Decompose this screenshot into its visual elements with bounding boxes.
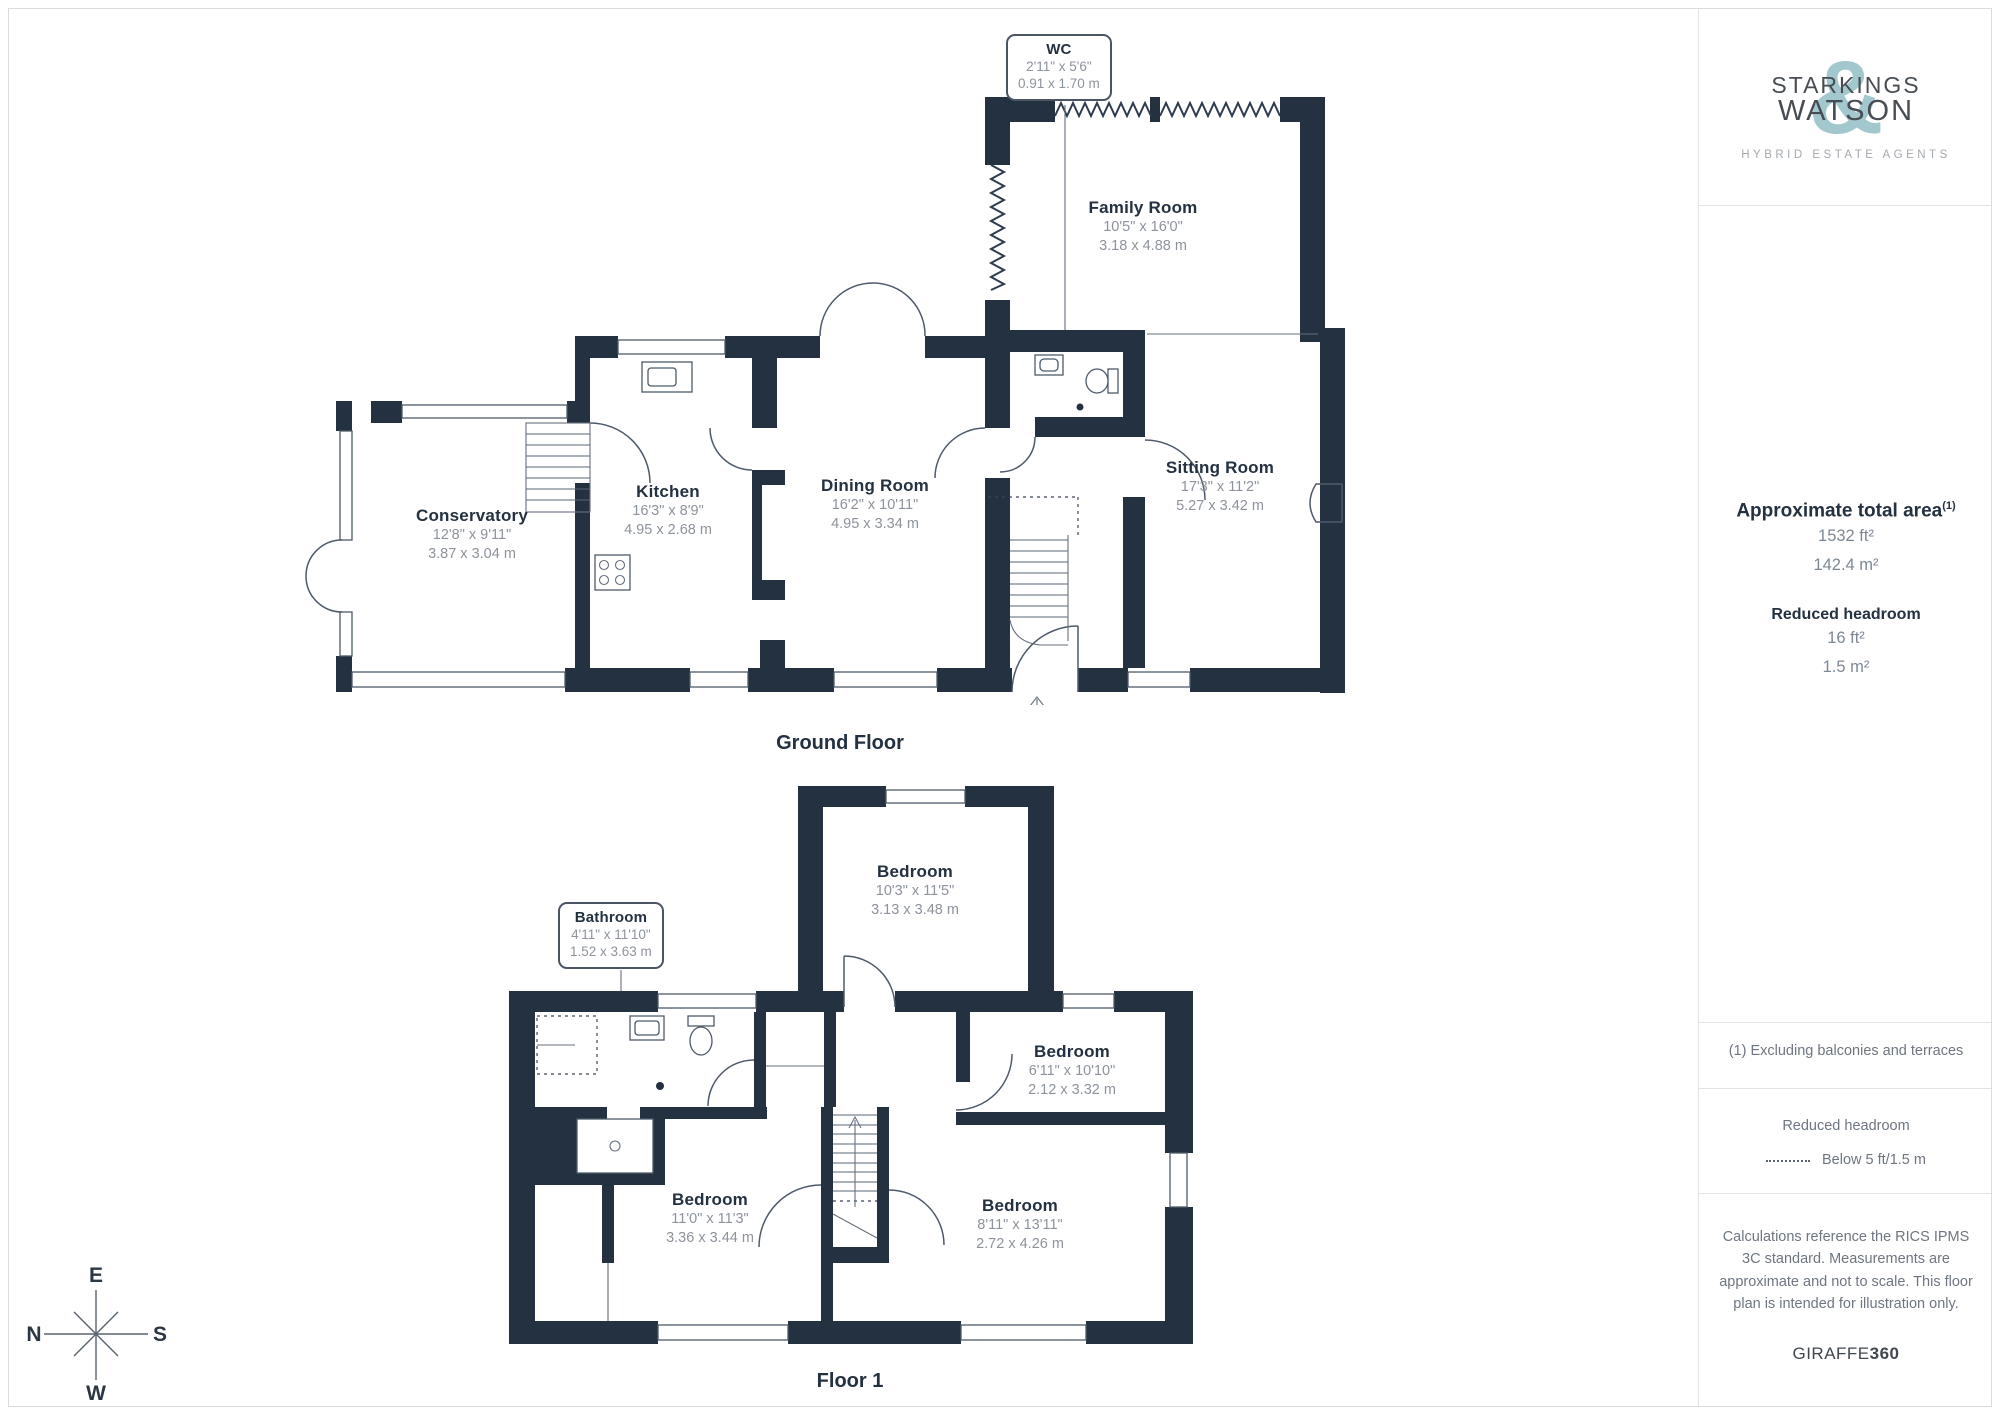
total-area-m: 142.4 m² xyxy=(1700,551,1992,580)
room-callout-wc: WC 2'11" x 5'6" 0.91 x 1.70 m xyxy=(1006,34,1112,101)
zigzag-wall-marks xyxy=(991,103,1280,290)
provider-name: GIRAFFE xyxy=(1792,1344,1869,1363)
room-label-bedroom-bottom-right: Bedroom 8'11" x 13'11" 2.72 x 4.26 m xyxy=(976,1196,1064,1253)
ground-floor-title: Ground Floor xyxy=(776,732,904,755)
total-area-title-text: Approximate total area xyxy=(1736,500,1942,521)
room-label-family-room: Family Room 10'5" x 16'0" 3.18 x 4.88 m xyxy=(1089,198,1198,255)
floor1-fixtures xyxy=(537,1016,824,1321)
room-label-kitchen: Kitchen 16'3" x 8'9" 4.95 x 2.68 m xyxy=(624,482,712,539)
divider-above-footnote xyxy=(1699,1022,1991,1023)
room-callout-bathroom: Bathroom 4'11" x 11'10" 1.52 x 3.63 m xyxy=(558,902,664,969)
legend-row: Below 5 ft/1.5 m xyxy=(1700,1149,1992,1171)
entrance-arrow-icon xyxy=(1030,697,1044,705)
compass-lines xyxy=(44,1290,148,1380)
room-label-dining-room: Dining Room 16'2" x 10'11" 4.95 x 3.34 m xyxy=(821,476,929,533)
disclaimer: Calculations reference the RICS IPMS 3C … xyxy=(1712,1226,1980,1316)
room-label-bedroom-right: Bedroom 6'11" x 10'10" 2.12 x 3.32 m xyxy=(1028,1042,1116,1099)
compass-icon: E N S W xyxy=(24,1258,174,1408)
floor1-stairs xyxy=(833,1115,877,1238)
room-label-conservatory: Conservatory 12'8" x 9'11" 3.87 x 3.04 m xyxy=(416,506,528,563)
legend-title: Reduced headroom xyxy=(1700,1115,1992,1137)
logo-tagline: HYBRID ESTATE AGENTS xyxy=(1700,149,1992,161)
reduced-headroom-ft: 16 ft² xyxy=(1700,624,1992,653)
total-area-footnote-marker: (1) xyxy=(1942,500,1955,512)
room-label-bedroom-top: Bedroom 10'3" x 11'5" 3.13 x 3.48 m xyxy=(871,862,959,919)
provider-suffix: 360 xyxy=(1870,1344,1900,1363)
reduced-headroom-m: 1.5 m² xyxy=(1700,653,1992,682)
dotted-line-icon xyxy=(1766,1160,1810,1162)
total-area-ft: 1532 ft² xyxy=(1700,522,1992,551)
divider-above-legend xyxy=(1699,1088,1991,1089)
svg-text:N: N xyxy=(26,1323,41,1346)
provider-logo: GIRAFFE360 xyxy=(1700,1344,1992,1364)
total-area-title: Approximate total area(1) xyxy=(1700,500,1992,522)
ground-floor-plan xyxy=(290,85,1370,705)
ground-floor-linework xyxy=(290,85,1370,705)
first-floor-title: Floor 1 xyxy=(817,1370,884,1393)
reduced-headroom-title: Reduced headroom xyxy=(1700,606,1992,624)
divider-above-disclaimer xyxy=(1699,1193,1991,1194)
chimney-niche xyxy=(762,485,785,580)
svg-text:E: E xyxy=(89,1264,103,1287)
room-label-sitting-room: Sitting Room 17'3" x 11'2" 5.27 x 3.42 m xyxy=(1166,458,1274,515)
floorplan-page: Conservatory 12'8" x 9'11" 3.87 x 3.04 m… xyxy=(0,0,2000,1415)
ground-walls xyxy=(336,97,1345,693)
legend: Reduced headroom Below 5 ft/1.5 m xyxy=(1700,1115,1992,1172)
svg-text:W: W xyxy=(86,1382,106,1405)
sidebar-divider xyxy=(1698,9,1699,1406)
svg-text:S: S xyxy=(153,1323,167,1346)
logo-name-line2: WATSON xyxy=(1700,95,1992,128)
room-label-bedroom-left: Bedroom 11'0" x 11'3" 3.36 x 3.44 m xyxy=(666,1190,754,1247)
legend-label: Below 5 ft/1.5 m xyxy=(1822,1152,1926,1168)
area-summary: Approximate total area(1) 1532 ft² 142.4… xyxy=(1700,500,1992,682)
agency-logo: & STARKINGS WATSON HYBRID ESTATE AGENTS xyxy=(1700,28,1992,188)
divider-under-logo xyxy=(1699,205,1991,206)
footnote: (1) Excluding balconies and terraces xyxy=(1700,1040,1992,1062)
